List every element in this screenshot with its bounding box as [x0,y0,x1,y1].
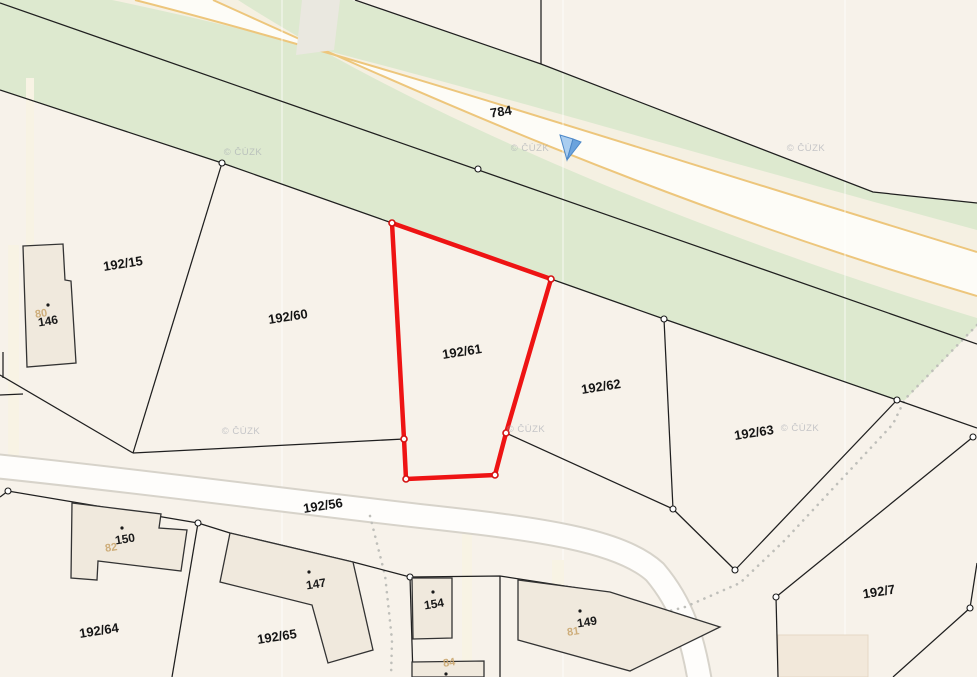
watermark-text: © ČÚZK [507,424,546,435]
watermark-text: © ČÚZK [787,143,826,154]
cadastral-map: 784 192/15 192/60 192/61 192/62 192/63 1… [0,0,977,677]
watermark-text: © ČÚZK [511,143,550,154]
house-number-81: 81 [566,625,580,639]
house-number-80: 80 [34,307,48,321]
basemap-building [778,635,868,677]
cadastral-map-viewport[interactable]: 784 192/15 192/60 192/61 192/62 192/63 1… [0,0,977,677]
watermark-text: © ČÚZK [224,147,263,158]
side-road-stub [296,0,340,55]
watermark-text: © ČÚZK [781,423,820,434]
house-number-82: 82 [104,541,118,555]
watermark-text: © ČÚZK [222,426,261,437]
